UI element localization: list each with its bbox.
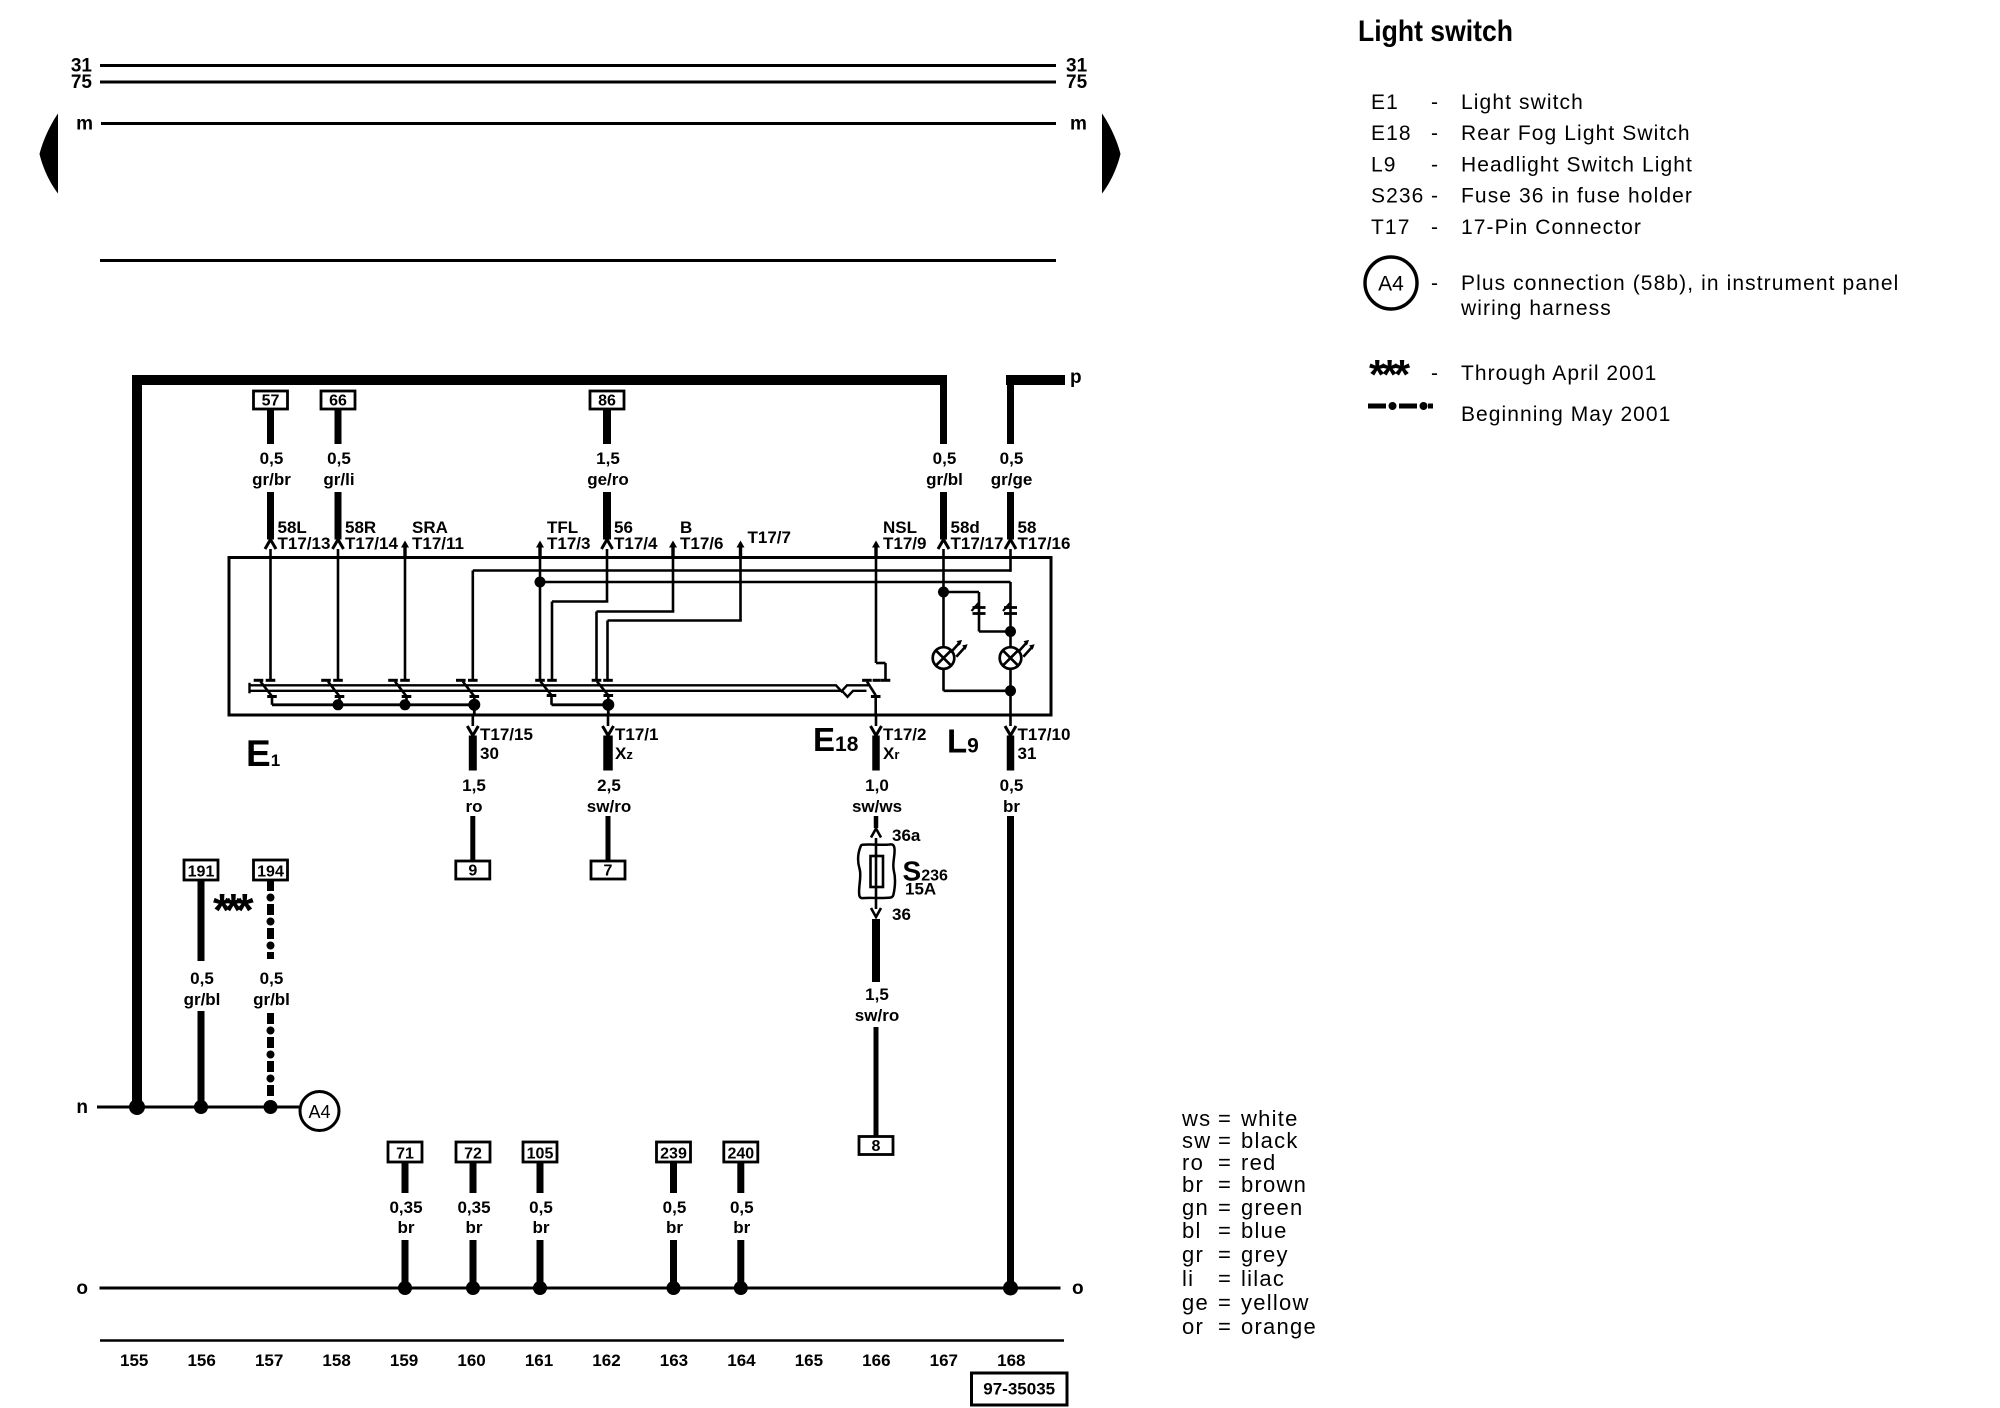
svg-text:Fuse 36 in fuse holder: Fuse 36 in fuse holder [1461, 185, 1693, 208]
svg-text:ge/ro: ge/ro [587, 470, 629, 489]
svg-text:0,5: 0,5 [190, 969, 214, 988]
svg-text:T17/17: T17/17 [951, 534, 1004, 553]
svg-text:2,5: 2,5 [597, 776, 621, 795]
svg-text:1,5: 1,5 [865, 985, 889, 1004]
svg-text:=: = [1218, 1172, 1231, 1197]
svg-text:ro: ro [466, 797, 483, 816]
svg-text:yellow: yellow [1241, 1290, 1310, 1315]
svg-text:T17/1: T17/1 [615, 725, 658, 744]
svg-text:br: br [466, 1218, 483, 1237]
svg-text:0,5: 0,5 [730, 1198, 754, 1217]
svg-text:br: br [398, 1218, 415, 1237]
svg-text:97-35035: 97-35035 [983, 1380, 1055, 1399]
svg-text:0,5: 0,5 [529, 1198, 553, 1217]
svg-text:31: 31 [1018, 744, 1037, 763]
svg-text:239: 239 [660, 1146, 687, 1163]
svg-text:sw/ro: sw/ro [587, 797, 631, 816]
svg-text:gr/bl: gr/bl [253, 990, 290, 1009]
svg-text:E1: E1 [1371, 91, 1399, 114]
svg-text:15A: 15A [905, 880, 936, 899]
svg-text:-: - [1431, 153, 1438, 176]
svg-text:ge: ge [1182, 1290, 1209, 1315]
svg-text:Xz: Xz [615, 744, 633, 763]
svg-text:162: 162 [592, 1351, 620, 1370]
svg-text:191: 191 [188, 864, 215, 881]
svg-text:T17/15: T17/15 [480, 725, 533, 744]
svg-text:165: 165 [795, 1351, 823, 1370]
svg-text:167: 167 [930, 1351, 958, 1370]
svg-text:T17/2: T17/2 [883, 725, 926, 744]
svg-text:-: - [1431, 272, 1438, 295]
svg-text:bl: bl [1182, 1218, 1202, 1243]
svg-text:160: 160 [457, 1351, 485, 1370]
svg-text:166: 166 [862, 1351, 890, 1370]
svg-text:T17/4: T17/4 [614, 534, 658, 553]
svg-text:156: 156 [187, 1351, 215, 1370]
svg-text:wiring harness: wiring harness [1460, 297, 1612, 320]
svg-text:Xr: Xr [883, 744, 899, 763]
svg-text:T17/3: T17/3 [547, 534, 590, 553]
svg-text:orange: orange [1241, 1314, 1317, 1339]
svg-text:36a: 36a [892, 826, 921, 845]
svg-text:brown: brown [1241, 1172, 1307, 1197]
svg-text:o: o [76, 1278, 88, 1299]
svg-text:168: 168 [997, 1351, 1025, 1370]
svg-text:=: = [1218, 1314, 1231, 1339]
svg-text:gr/ge: gr/ge [991, 470, 1033, 489]
svg-text:T17/11: T17/11 [412, 534, 464, 553]
svg-text:=: = [1218, 1218, 1231, 1243]
svg-text:7: 7 [604, 863, 613, 880]
svg-text:m: m [76, 114, 93, 135]
svg-text:gr/bl: gr/bl [184, 990, 221, 1009]
svg-text:T17/16: T17/16 [1018, 534, 1071, 553]
svg-text:Plus connection (58b), in inst: Plus connection (58b), in instrument pan… [1461, 272, 1899, 295]
svg-text:240: 240 [727, 1146, 754, 1163]
svg-text:E18: E18 [1371, 122, 1412, 145]
svg-text:17-Pin Connector: 17-Pin Connector [1461, 216, 1642, 239]
svg-text:T17/13: T17/13 [278, 534, 331, 553]
svg-text:gr: gr [1182, 1242, 1204, 1267]
svg-text:A4: A4 [308, 1102, 330, 1122]
svg-text:0,5: 0,5 [1000, 449, 1024, 468]
svg-text:157: 157 [255, 1351, 283, 1370]
svg-text:T17/9: T17/9 [883, 534, 926, 553]
svg-text:36: 36 [892, 905, 911, 924]
svg-text:0,5: 0,5 [260, 449, 284, 468]
svg-text:1,5: 1,5 [596, 449, 620, 468]
svg-text:0,5: 0,5 [663, 1198, 687, 1217]
svg-text:72: 72 [464, 1146, 482, 1163]
svg-text:0,35: 0,35 [457, 1198, 490, 1217]
svg-text:p: p [1070, 367, 1082, 388]
svg-text:lilac: lilac [1241, 1266, 1285, 1291]
svg-text:-: - [1431, 122, 1438, 145]
svg-text:T17/10: T17/10 [1018, 725, 1071, 744]
svg-text:158: 158 [322, 1351, 350, 1370]
svg-text:8: 8 [872, 1138, 881, 1155]
svg-text:blue: blue [1241, 1218, 1288, 1243]
svg-text:br: br [1182, 1172, 1204, 1197]
svg-text:T17/7: T17/7 [748, 528, 791, 547]
svg-text:75: 75 [1066, 72, 1088, 93]
svg-text:Rear Fog Light Switch: Rear Fog Light Switch [1461, 122, 1691, 145]
svg-text:=: = [1218, 1266, 1231, 1291]
svg-text:0,5: 0,5 [327, 449, 351, 468]
svg-text:0,5: 0,5 [1000, 776, 1024, 795]
svg-text:br: br [666, 1218, 683, 1237]
svg-text:0,35: 0,35 [389, 1198, 422, 1217]
svg-text:66: 66 [329, 393, 347, 410]
svg-text:gr/br: gr/br [252, 470, 291, 489]
svg-text:163: 163 [660, 1351, 688, 1370]
svg-text:Beginning May 2001: Beginning May 2001 [1461, 403, 1671, 426]
svg-text:=: = [1218, 1195, 1231, 1220]
svg-text:T17/6: T17/6 [680, 534, 723, 553]
svg-text:0,5: 0,5 [933, 449, 957, 468]
svg-text:=: = [1218, 1290, 1231, 1315]
svg-text:gr/bl: gr/bl [926, 470, 963, 489]
svg-text:***: *** [1369, 351, 1411, 398]
svg-text:sw/ws: sw/ws [852, 797, 902, 816]
svg-text:159: 159 [390, 1351, 418, 1370]
svg-text:=: = [1218, 1242, 1231, 1267]
svg-text:75: 75 [71, 72, 93, 93]
svg-text:105: 105 [527, 1146, 554, 1163]
svg-text:S236: S236 [1371, 185, 1424, 208]
svg-text:57: 57 [262, 393, 280, 410]
svg-text:br: br [1003, 797, 1020, 816]
svg-text:n: n [76, 1097, 88, 1118]
svg-text:-: - [1431, 91, 1438, 114]
svg-text:sw/ro: sw/ro [855, 1006, 899, 1025]
svg-text:br: br [733, 1218, 750, 1237]
svg-text:Light switch: Light switch [1461, 91, 1584, 114]
svg-text:L9: L9 [1371, 153, 1397, 176]
svg-text:155: 155 [120, 1351, 148, 1370]
svg-text:-: - [1431, 362, 1438, 385]
svg-text:li: li [1182, 1266, 1194, 1291]
svg-text:-: - [1431, 185, 1438, 208]
svg-text:br: br [533, 1218, 550, 1237]
svg-text:T17: T17 [1371, 216, 1411, 239]
svg-text:-: - [1431, 216, 1438, 239]
svg-text:gn: gn [1182, 1195, 1209, 1220]
svg-text:A4: A4 [1378, 273, 1404, 296]
svg-text:green: green [1241, 1195, 1304, 1220]
svg-text:grey: grey [1241, 1242, 1289, 1267]
svg-text:9: 9 [468, 863, 477, 880]
svg-text:194: 194 [257, 864, 284, 881]
svg-text:o: o [1072, 1278, 1084, 1299]
svg-text:0,5: 0,5 [260, 969, 284, 988]
svg-text:71: 71 [396, 1146, 414, 1163]
svg-text:86: 86 [598, 393, 616, 410]
svg-text:or: or [1182, 1314, 1204, 1339]
svg-text:T17/14: T17/14 [345, 534, 398, 553]
svg-text:m: m [1070, 114, 1087, 135]
svg-text:Headlight Switch Light: Headlight Switch Light [1461, 153, 1693, 176]
svg-text:1,5: 1,5 [462, 776, 486, 795]
svg-text:gr/li: gr/li [323, 470, 354, 489]
svg-text:161: 161 [525, 1351, 553, 1370]
svg-text:Through April 2001: Through April 2001 [1461, 362, 1657, 385]
svg-text:30: 30 [480, 744, 499, 763]
svg-text:164: 164 [727, 1351, 756, 1370]
svg-text:1,0: 1,0 [865, 776, 889, 795]
svg-text:Light switch: Light switch [1358, 15, 1513, 48]
